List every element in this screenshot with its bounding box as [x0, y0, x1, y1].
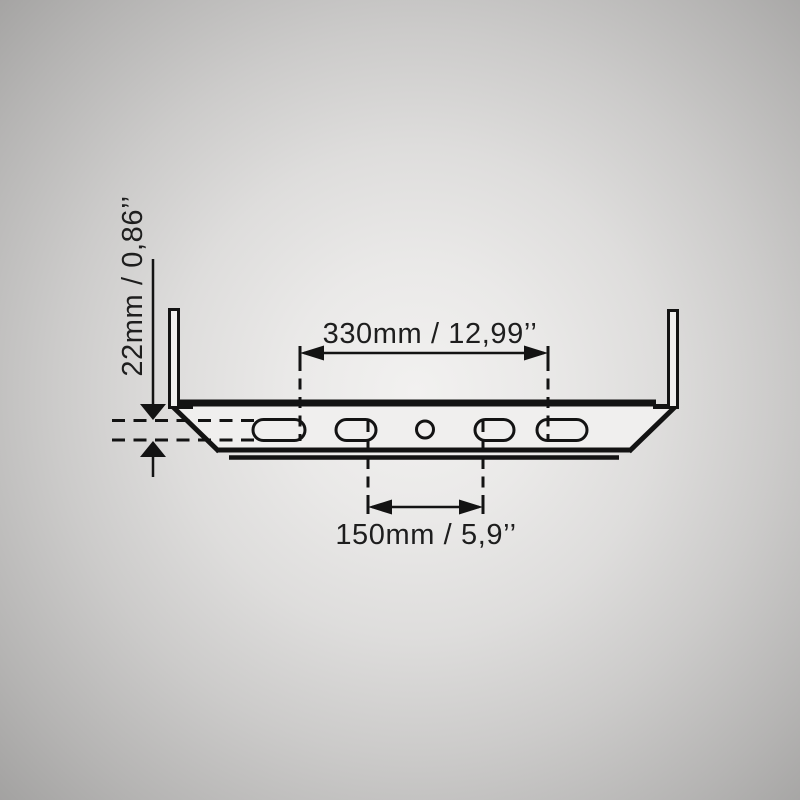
dim-150-arrowhead-right — [459, 500, 483, 515]
product-dimension-diagram: 330mm / 12,99’’ 150mm / 5,9’’ 22mm / 0,8… — [0, 0, 800, 800]
dim-330-arrowhead-left — [300, 346, 324, 361]
right-flange — [669, 311, 678, 408]
dim-22-arrowhead-down — [140, 404, 166, 420]
dimension-width-330: 330mm / 12,99’’ — [300, 318, 548, 361]
dim-22-arrowhead-up — [140, 441, 166, 457]
dim-22-label: 22mm / 0,86’’ — [117, 195, 149, 376]
dimension-spacing-150: 150mm / 5,9’’ — [335, 500, 516, 552]
dim-330-label: 330mm / 12,99’’ — [323, 318, 538, 350]
dim-150-label: 150mm / 5,9’’ — [335, 519, 516, 551]
dimension-height-22: 22mm / 0,86’’ — [117, 195, 166, 477]
diagram-canvas: 330mm / 12,99’’ 150mm / 5,9’’ 22mm / 0,8… — [0, 0, 800, 800]
profile-body-face — [171, 400, 677, 452]
dim-150-arrowhead-left — [368, 500, 392, 515]
left-flange — [170, 310, 179, 408]
